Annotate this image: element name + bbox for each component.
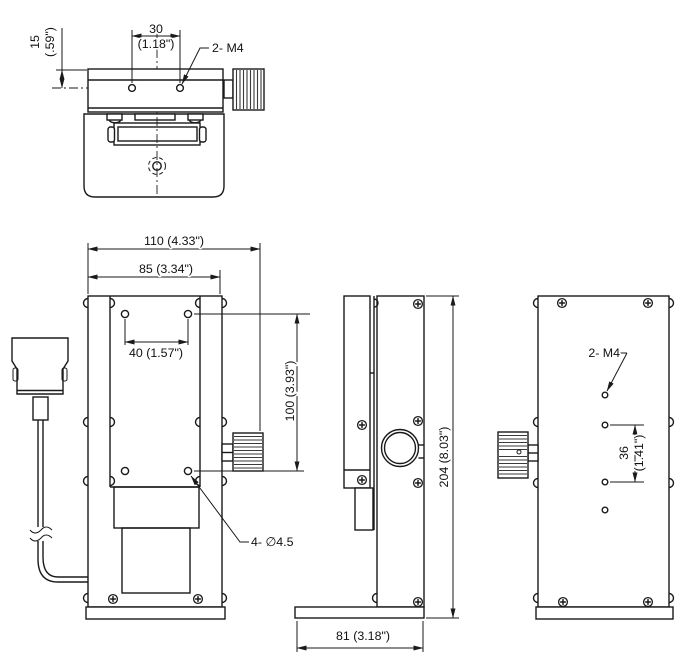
- base-plate-back: [536, 607, 673, 619]
- dim-label-inch: (1.41"): [632, 435, 646, 472]
- connector-and-cable: [12, 338, 88, 582]
- dim-label: 100 (3.93"): [283, 361, 297, 422]
- slide-plate-side: [344, 296, 370, 488]
- dim-label-inch: (.59"): [43, 27, 57, 57]
- dim-label: 40 (1.57"): [129, 346, 183, 360]
- tapped-hole: [177, 85, 184, 92]
- screw-icon: [414, 417, 423, 426]
- screw-icon: [414, 479, 423, 488]
- set-screw-dot: [517, 450, 521, 454]
- stage-body-back: [538, 296, 669, 607]
- screw-icon: [358, 476, 367, 485]
- screw-icon: [194, 595, 203, 604]
- side-view: 204 (8.03") 81 (3.18"): [295, 296, 459, 652]
- dim-base-depth: 81 (3.18"): [297, 621, 423, 652]
- tapped-hole: [602, 422, 608, 428]
- dim-edge-offset-top: 15 (.59"): [28, 27, 87, 88]
- dim-label: 36: [617, 446, 631, 460]
- adjustment-knob-front: [222, 433, 263, 471]
- screw-icon: [358, 421, 367, 430]
- thread-label: 2- M4: [588, 346, 620, 360]
- mounting-hole: [184, 467, 191, 474]
- cable-boot: [33, 397, 48, 420]
- top-view: 30 (1.18") 2- M4 15 (.59"): [28, 22, 264, 197]
- tapped-hole: [129, 85, 136, 92]
- cable-break-mark: [30, 535, 52, 541]
- screw-icon: [109, 595, 118, 604]
- front-view: 110 (4.33") 85 (3.34") 40 (1.57") 100 (3…: [12, 234, 310, 619]
- screw-icon: [559, 598, 568, 607]
- dim-label: 30: [149, 22, 163, 36]
- tapped-hole: [602, 507, 608, 513]
- tapped-hole: [602, 479, 608, 485]
- top-plate: [88, 69, 223, 112]
- stage-body-front: [88, 296, 222, 607]
- screw-icon: [414, 598, 423, 607]
- dim-label: 85 (3.34"): [139, 262, 193, 276]
- dim-body-width: 85 (3.34"): [88, 262, 220, 294]
- bracket-step-side: [355, 488, 373, 530]
- technical-drawing-canvas: 30 (1.18") 2- M4 15 (.59"): [0, 0, 700, 662]
- dim-label: 110 (4.33"): [144, 234, 204, 248]
- connector: [12, 338, 68, 394]
- thread-label: 2- M4: [212, 41, 244, 55]
- screw-icon: [414, 300, 423, 309]
- cable-break-mark: [30, 527, 52, 533]
- adjustment-knob-top: [224, 69, 264, 110]
- screw-icon: [644, 299, 653, 308]
- adjustment-knob-back: [498, 432, 538, 478]
- mounting-hole: [121, 467, 128, 474]
- mounting-hole: [121, 310, 128, 317]
- dim-label: 204 (8.03"): [437, 427, 451, 488]
- dim-label-inch: (1.18"): [138, 37, 175, 51]
- base-plate-side: [295, 607, 424, 618]
- mounting-hole: [184, 310, 191, 317]
- dim-label: 81 (3.18"): [336, 629, 390, 643]
- dim-label: 15: [28, 35, 42, 49]
- hole-label: 4- ∅4.5: [251, 535, 294, 549]
- screw-icon: [558, 299, 567, 308]
- stage-dimension-drawing: 30 (1.18") 2- M4 15 (.59"): [0, 0, 700, 662]
- dim-overall-height: 204 (8.03"): [426, 296, 459, 618]
- back-view: 2- M4 36 (1.41"): [498, 296, 674, 619]
- tapped-hole: [602, 392, 608, 398]
- screw-icon: [644, 598, 653, 607]
- base-plate-front: [86, 607, 225, 619]
